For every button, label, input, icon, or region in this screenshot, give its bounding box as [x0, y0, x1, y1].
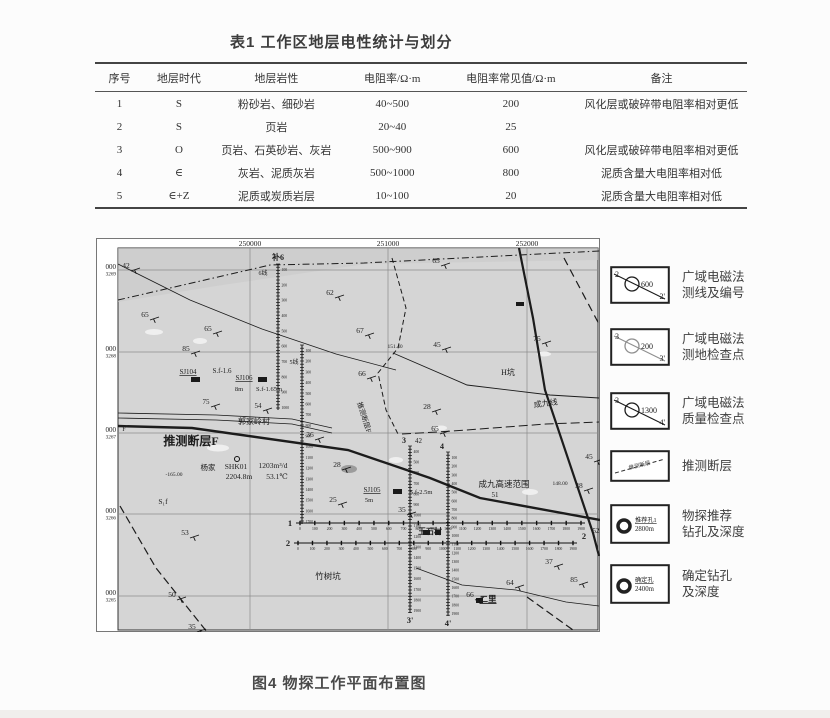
svg-text:1100: 1100	[459, 527, 467, 531]
table-cell: 粉砂岩、细砂岩	[214, 92, 339, 116]
svg-text:600: 600	[414, 471, 420, 475]
svg-text:3266: 3266	[106, 516, 117, 522]
svg-text:1400: 1400	[497, 547, 505, 551]
svg-text:1500: 1500	[414, 567, 422, 571]
svg-text:1300: 1300	[488, 527, 496, 531]
svg-text:成九高速范围: 成九高速范围	[478, 479, 529, 489]
svg-text:100: 100	[306, 349, 312, 353]
column-header: 备注	[576, 63, 747, 92]
svg-text:F: F	[122, 426, 126, 433]
table-cell: S	[144, 92, 214, 116]
svg-text:65: 65	[141, 310, 149, 319]
svg-text:900: 900	[452, 525, 458, 529]
svg-text:1300: 1300	[306, 477, 314, 481]
svg-text:85: 85	[182, 344, 190, 353]
table-cell: S	[144, 115, 214, 138]
svg-text:400: 400	[353, 547, 359, 551]
svg-text:1700: 1700	[452, 595, 460, 599]
svg-text:1600: 1600	[414, 577, 422, 581]
svg-text:200: 200	[641, 342, 653, 351]
svg-text:1000: 1000	[452, 534, 460, 538]
svg-text:400: 400	[306, 381, 312, 385]
svg-text:62: 62	[326, 288, 334, 297]
svg-text:700: 700	[306, 413, 312, 417]
column-header: 地层岩性	[214, 63, 339, 92]
table-cell: 1	[95, 92, 144, 116]
svg-text:100: 100	[452, 456, 458, 460]
svg-text:200: 200	[282, 283, 288, 287]
svg-text:1200: 1200	[452, 551, 460, 555]
svg-text:郭家岭村: 郭家岭村	[238, 416, 270, 426]
svg-text:500: 500	[368, 547, 374, 551]
svg-text:600: 600	[641, 280, 653, 289]
svg-text:900: 900	[414, 503, 420, 507]
svg-text:600: 600	[386, 527, 392, 531]
svg-text:000: 000	[106, 263, 117, 271]
svg-text:800: 800	[452, 517, 458, 521]
svg-text:1500: 1500	[306, 499, 314, 503]
svg-text:SJ105: SJ105	[363, 486, 381, 494]
table-row: 2S页岩20~4025	[95, 115, 747, 138]
svg-text:1200: 1200	[474, 527, 482, 531]
svg-text:1200: 1200	[468, 547, 476, 551]
svg-text:500: 500	[414, 461, 420, 465]
table-cell: 泥质含量大电阻率相对低	[576, 161, 747, 184]
svg-text:3: 3	[615, 396, 619, 405]
svg-text:3265: 3265	[106, 598, 117, 604]
svg-text:1400: 1400	[306, 488, 314, 492]
svg-text:玉石村: 玉石村	[418, 526, 442, 536]
svg-text:1000: 1000	[439, 547, 447, 551]
svg-text:200: 200	[306, 360, 312, 364]
column-header: 序号	[95, 63, 144, 92]
svg-text:25: 25	[329, 495, 337, 504]
svg-text:65: 65	[431, 424, 439, 433]
svg-text:补6: 补6	[271, 252, 284, 262]
legend-item: 推荐孔12800m物探推荐钻孔及深度	[610, 504, 745, 544]
table-cell: 页岩	[214, 115, 339, 138]
svg-text:38: 38	[575, 481, 583, 490]
svg-text:54: 54	[255, 402, 263, 410]
svg-text:1400: 1400	[414, 556, 422, 560]
svg-text:竹树坑: 竹树坑	[315, 571, 341, 581]
svg-text:2': 2'	[660, 292, 666, 301]
svg-text:251000: 251000	[377, 239, 400, 248]
svg-text:400: 400	[282, 314, 288, 318]
svg-text:42: 42	[415, 437, 423, 445]
svg-text:1600: 1600	[452, 586, 460, 590]
legend-label: 广域电磁法测地检查点	[682, 331, 745, 364]
svg-text:1300: 1300	[482, 547, 490, 551]
svg-text:700: 700	[401, 527, 407, 531]
svg-text:3: 3	[402, 436, 406, 445]
svg-text:100: 100	[282, 268, 288, 272]
svg-text:1900: 1900	[569, 547, 577, 551]
svg-text:SJ104: SJ104	[179, 368, 197, 376]
svg-text:H坑: H坑	[501, 367, 515, 377]
svg-text:35: 35	[188, 622, 196, 631]
table-cell: O	[144, 138, 214, 161]
table-cell: 风化层或破碎带电阻率相对更低	[576, 92, 747, 116]
svg-text:2400m: 2400m	[635, 586, 655, 593]
svg-text:4': 4'	[660, 418, 666, 427]
svg-text:SHK01: SHK01	[225, 462, 248, 471]
strata-table-header: 序号地层时代地层岩性电阻率/Ω·m电阻率常见值/Ω·m备注	[95, 63, 747, 92]
svg-text:3269: 3269	[106, 272, 117, 278]
svg-text:推荐孔1: 推荐孔1	[635, 516, 657, 524]
svg-text:66: 66	[358, 369, 366, 378]
page-footer-strip	[0, 710, 830, 718]
svg-text:700: 700	[396, 547, 402, 551]
svg-text:400: 400	[356, 527, 362, 531]
svg-text:000: 000	[106, 426, 117, 434]
svg-text:1300: 1300	[641, 406, 657, 415]
table-row: 4∈灰岩、泥质灰岩500~1000800泥质含量大电阻率相对低	[95, 161, 747, 184]
table-cell: 4	[95, 161, 144, 184]
svg-text:600: 600	[452, 499, 458, 503]
legend-symbol-borehole: 推荐孔12800m	[610, 504, 670, 544]
svg-text:1600: 1600	[306, 509, 314, 513]
svg-text:52: 52	[593, 527, 601, 535]
svg-text:4': 4'	[445, 618, 452, 628]
svg-text:148.00: 148.00	[552, 481, 567, 487]
svg-text:1700: 1700	[540, 547, 548, 551]
legend-symbol-survey-line: 26002'	[610, 266, 670, 304]
svg-text:200: 200	[327, 527, 333, 531]
svg-text:65: 65	[204, 324, 212, 333]
svg-text:300: 300	[339, 547, 345, 551]
svg-text:200: 200	[452, 465, 458, 469]
svg-text:1800: 1800	[562, 527, 570, 531]
svg-text:-165.00: -165.00	[166, 472, 183, 478]
svg-text:151.40: 151.40	[387, 344, 402, 350]
svg-text:8m: 8m	[235, 386, 243, 393]
svg-text:28: 28	[333, 460, 341, 469]
svg-text:3267: 3267	[106, 435, 117, 441]
svg-text:2: 2	[582, 531, 586, 541]
svg-text:S.f-2.5m: S.f-2.5m	[410, 489, 433, 496]
legend-symbol-borehole: 确定孔2400m	[610, 564, 670, 604]
table-cell: 10~100	[339, 184, 446, 208]
svg-text:300: 300	[306, 370, 312, 374]
svg-text:1400: 1400	[503, 527, 511, 531]
svg-text:250000: 250000	[239, 239, 262, 248]
svg-text:1900: 1900	[414, 609, 422, 613]
column-header: 电阻率常见值/Ω·m	[446, 63, 576, 92]
svg-text:5m: 5m	[365, 497, 373, 504]
svg-text:75: 75	[533, 334, 541, 343]
svg-text:1600: 1600	[533, 527, 541, 531]
table-row: 3O页岩、石英砂岩、灰岩500~900600风化层或破碎带电阻率相对更低	[95, 138, 747, 161]
legend-item: 313004'广域电磁法质量检查点	[610, 392, 745, 430]
table-cell: 40~500	[339, 92, 446, 116]
table-cell	[576, 115, 747, 138]
svg-text:66: 66	[466, 590, 474, 599]
svg-text:53: 53	[181, 528, 189, 537]
svg-text:100: 100	[312, 527, 318, 531]
svg-text:000: 000	[106, 507, 117, 515]
svg-text:1800: 1800	[452, 603, 460, 607]
svg-text:000: 000	[106, 345, 117, 353]
table-cell: 800	[446, 161, 576, 184]
table-cell: 2	[95, 115, 144, 138]
svg-text:65: 65	[432, 256, 440, 265]
svg-text:53.1℃: 53.1℃	[266, 472, 288, 481]
strata-table: 序号地层时代地层岩性电阻率/Ω·m电阻率常见值/Ω·m备注 1S粉砂岩、细砂岩4…	[95, 62, 747, 209]
svg-text:300: 300	[342, 527, 348, 531]
geophysical-map: 1002003004005006007008009001000100200300…	[96, 238, 600, 632]
svg-text:1000: 1000	[444, 527, 452, 531]
svg-text:1000: 1000	[414, 514, 422, 518]
table-cell: 页岩、石英砂岩、灰岩	[214, 138, 339, 161]
table-cell: 风化层或破碎带电阻率相对更低	[576, 138, 747, 161]
table-cell: 5	[95, 184, 144, 208]
svg-text:100: 100	[310, 547, 316, 551]
svg-text:67: 67	[356, 326, 364, 335]
svg-text:1700: 1700	[548, 527, 556, 531]
svg-text:2204.8m: 2204.8m	[226, 472, 253, 481]
page: 表1 工作区地层电性统计与划分 序号地层时代地层岩性电阻率/Ω·m电阻率常见值/…	[0, 0, 830, 718]
svg-text:500: 500	[452, 491, 458, 495]
figure-caption: 图4 物探工作平面布置图	[252, 672, 427, 693]
svg-text:400: 400	[414, 450, 420, 454]
svg-text:800: 800	[282, 375, 288, 379]
svg-text:1300: 1300	[452, 560, 460, 564]
svg-text:确定孔: 确定孔	[635, 576, 654, 584]
table-cell: ∈+Z	[144, 184, 214, 208]
svg-text:3': 3'	[407, 615, 414, 625]
svg-text:64: 64	[506, 578, 514, 587]
svg-text:1000: 1000	[282, 406, 290, 410]
svg-text:700: 700	[452, 508, 458, 512]
table-title: 表1 工作区地层电性统计与划分	[230, 31, 453, 52]
svg-text:300: 300	[452, 473, 458, 477]
svg-text:500: 500	[282, 329, 288, 333]
table-cell: ∈	[144, 161, 214, 184]
svg-text:50: 50	[168, 590, 176, 599]
svg-text:1900: 1900	[452, 612, 460, 616]
svg-text:45: 45	[433, 340, 441, 349]
svg-text:35: 35	[398, 505, 406, 514]
svg-text:推测断层F: 推测断层F	[163, 433, 218, 448]
svg-text:1500: 1500	[452, 577, 460, 581]
table-cell: 灰岩、泥质灰岩	[214, 161, 339, 184]
svg-text:900: 900	[425, 547, 431, 551]
svg-text:600: 600	[306, 402, 312, 406]
svg-text:4: 4	[440, 442, 444, 451]
svg-text:51: 51	[492, 491, 500, 499]
svg-text:6线: 6线	[258, 269, 267, 277]
svg-text:杨家: 杨家	[201, 462, 216, 472]
svg-text:28: 28	[423, 402, 431, 411]
table-row: 5∈+Z泥质或炭质岩层10~10020泥质含量大电阻率相对低	[95, 184, 747, 208]
svg-text:1100: 1100	[306, 456, 314, 460]
svg-text:700: 700	[414, 482, 420, 486]
svg-text:S.f-1.6: S.f-1.6	[212, 367, 232, 375]
legend-symbol-inferred-fault: 推测断层	[610, 450, 670, 482]
svg-text:85: 85	[570, 575, 578, 584]
svg-text:36: 36	[306, 430, 314, 439]
svg-text:500: 500	[371, 527, 377, 531]
svg-text:3268: 3268	[106, 354, 117, 360]
svg-text:37: 37	[545, 557, 553, 566]
svg-text:2: 2	[615, 270, 619, 279]
svg-text:5线: 5线	[289, 358, 298, 366]
column-header: 电阻率/Ω·m	[339, 63, 446, 92]
legend-label: 物探推荐钻孔及深度	[682, 508, 745, 541]
table-cell: 3	[95, 138, 144, 161]
svg-text:S₁f: S₁f	[158, 497, 168, 506]
svg-text:1400: 1400	[452, 569, 460, 573]
svg-text:二里: 二里	[479, 594, 497, 604]
map-legend: 26002'广域电磁法测线及编号32003'广域电磁法测地检查点313004'广…	[608, 238, 830, 632]
svg-text:800: 800	[306, 424, 312, 428]
svg-text:400: 400	[452, 482, 458, 486]
svg-text:800: 800	[411, 547, 417, 551]
legend-label: 广域电磁法测线及编号	[682, 269, 745, 302]
column-header: 地层时代	[144, 63, 214, 92]
svg-text:1: 1	[288, 518, 292, 528]
svg-text:500: 500	[306, 392, 312, 396]
svg-text:1000: 1000	[306, 445, 314, 449]
table-row: 1S粉砂岩、细砂岩40~500200风化层或破碎带电阻率相对更低	[95, 92, 747, 116]
map-figure: 1002003004005006007008009001000100200300…	[96, 238, 600, 632]
svg-text:42: 42	[122, 261, 130, 270]
legend-item: 32003'广域电磁法测地检查点	[610, 328, 745, 366]
svg-text:3: 3	[615, 332, 619, 341]
legend-label: 推测断层	[682, 458, 732, 474]
svg-text:900: 900	[282, 391, 288, 395]
svg-text:300: 300	[282, 299, 288, 303]
svg-text:2: 2	[286, 538, 290, 548]
svg-text:700: 700	[282, 360, 288, 364]
legend-item: 确定孔2400m确定钻孔及深度	[610, 564, 732, 604]
svg-text:1500: 1500	[518, 527, 526, 531]
legend-item: 推测断层推测断层	[610, 450, 732, 482]
svg-text:1600: 1600	[526, 547, 534, 551]
table-cell: 泥质含量大电阻率相对低	[576, 184, 747, 208]
legend-label: 确定钻孔及深度	[682, 568, 732, 601]
legend-label: 广域电磁法质量检查点	[682, 395, 745, 428]
svg-text:1700: 1700	[414, 588, 422, 592]
svg-text:1800: 1800	[555, 547, 563, 551]
svg-text:1100: 1100	[453, 547, 461, 551]
svg-text:0: 0	[299, 527, 301, 531]
svg-text:000: 000	[106, 589, 117, 597]
svg-text:252000: 252000	[516, 239, 539, 248]
svg-text:3': 3'	[660, 354, 666, 363]
table-cell: 20	[446, 184, 576, 208]
table-cell: 500~1000	[339, 161, 446, 184]
svg-text:600: 600	[282, 345, 288, 349]
svg-text:75: 75	[203, 398, 211, 406]
svg-text:1500: 1500	[511, 547, 519, 551]
svg-text:2800m: 2800m	[635, 526, 655, 533]
svg-text:0: 0	[297, 547, 299, 551]
svg-text:45: 45	[585, 452, 593, 461]
table-cell: 20~40	[339, 115, 446, 138]
table-cell: 500~900	[339, 138, 446, 161]
legend-item: 26002'广域电磁法测线及编号	[610, 266, 745, 304]
svg-text:1200: 1200	[306, 467, 314, 471]
table-cell: 600	[446, 138, 576, 161]
legend-symbol-survey-line: 32003'	[610, 328, 670, 366]
svg-text:600: 600	[382, 547, 388, 551]
svg-text:S.f-1.65m: S.f-1.65m	[256, 386, 282, 393]
svg-text:1203m³/d: 1203m³/d	[259, 461, 288, 470]
table-cell: 200	[446, 92, 576, 116]
svg-text:1800: 1800	[414, 598, 422, 602]
svg-text:SJ106: SJ106	[235, 374, 253, 382]
legend-symbol-survey-line: 313004'	[610, 392, 670, 430]
svg-text:200: 200	[324, 547, 330, 551]
table-cell: 25	[446, 115, 576, 138]
table-cell: 泥质或炭质岩层	[214, 184, 339, 208]
